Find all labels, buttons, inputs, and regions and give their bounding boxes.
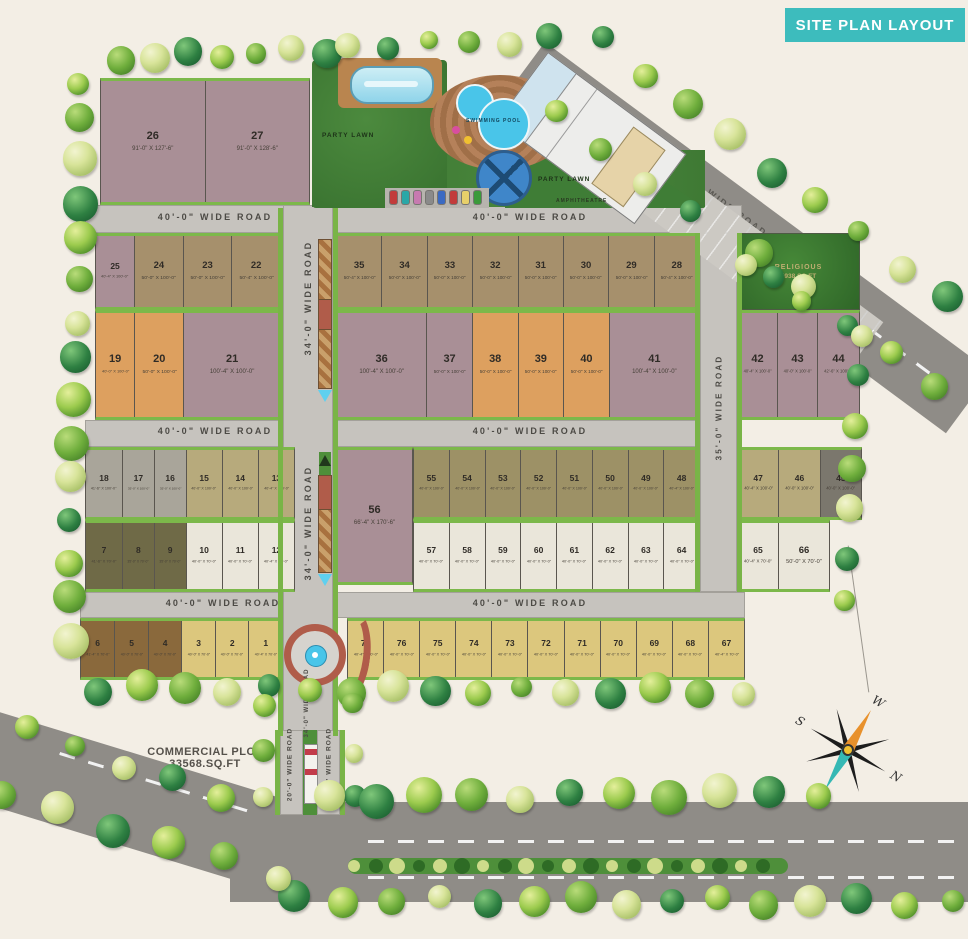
site-plan-canvas: 80'-0" WIDE ROAD xyxy=(0,0,968,939)
shrub-icon xyxy=(477,860,489,872)
plot-9: 935'-0" X 70'-0" xyxy=(154,523,186,589)
tree-icon xyxy=(660,889,684,913)
plot-22: 2250'-4" X 100'-0" xyxy=(231,236,280,307)
plot-27: 2791'-0" X 128'-6" xyxy=(205,81,310,202)
plot-24: 2450'-0" X 100'-0" xyxy=(134,236,183,307)
road-34-label: 34'-0" WIDE ROAD xyxy=(303,448,313,598)
car-icon xyxy=(414,191,421,204)
plot-30: 3050'-0" X 100'-0" xyxy=(563,236,608,307)
shrub-icon xyxy=(413,860,425,872)
shrub-icon xyxy=(389,858,405,874)
plot-11: 1140'-0" X 70'-0" xyxy=(222,523,258,589)
tree-icon xyxy=(335,33,360,58)
plot-16: 1635'-0" X 100'-0" xyxy=(154,450,186,517)
plot-58: 5840'-0" X 70'-0" xyxy=(449,523,485,589)
plot-23: 2350'-0" X 100'-0" xyxy=(183,236,232,307)
plot-69: 6940'-0" X 70'-0" xyxy=(636,621,672,677)
plot-65: 6540'-4" X 70'-0" xyxy=(738,523,778,589)
lane-dash xyxy=(368,840,958,843)
tree-icon xyxy=(511,677,531,697)
plot-75: 7540'-0" X 70'-0" xyxy=(419,621,455,677)
tree-icon xyxy=(112,756,136,780)
plot-block-b2627: 2691'-0" X 127'-6"2791'-0" X 128'-6" xyxy=(100,78,310,205)
tree-icon xyxy=(834,590,855,611)
road-40-label: 40'-0" WIDE ROAD xyxy=(455,598,605,608)
plot-block-b57_64: 5740'-0" X 70'-0"5840'-0" X 70'-0"5940'-… xyxy=(413,520,700,592)
road-median xyxy=(319,240,331,300)
tree-icon xyxy=(552,679,579,706)
tree-icon xyxy=(932,281,963,312)
green-strip xyxy=(695,233,700,592)
plot-17: 1735'-0" X 100'-0" xyxy=(122,450,154,517)
tree-icon xyxy=(53,623,89,659)
tree-icon xyxy=(67,73,89,95)
shrub-icon xyxy=(627,859,641,873)
tree-icon xyxy=(56,382,92,418)
plot-2: 240'-0" X 70'-0" xyxy=(215,621,249,677)
shrub-icon xyxy=(433,859,447,873)
tree-icon xyxy=(63,141,98,176)
plot-48: 4840'-4" X 100'-0" xyxy=(663,450,699,517)
car-icon xyxy=(450,191,457,204)
tree-icon xyxy=(794,885,826,917)
plot-block-b6_1: 641'-4" X 70'-0"540'-0" X 70'-0"440'-0" … xyxy=(80,618,283,680)
tree-icon xyxy=(757,158,787,188)
tree-icon xyxy=(497,32,522,57)
plot-74: 7440'-0" X 70'-0" xyxy=(455,621,491,677)
tree-icon xyxy=(633,64,658,89)
plot-31: 3150'-0" X 100'-0" xyxy=(518,236,563,307)
plot-20: 2050'-0" X 100'-0" xyxy=(134,313,183,417)
plot-55: 5540'-0" X 100'-0" xyxy=(414,450,449,517)
tree-icon xyxy=(806,783,832,809)
tree-icon xyxy=(174,37,203,66)
plot-block-b18_13: 1841'-6" X 100'-0"1735'-0" X 100'-0"1635… xyxy=(85,447,295,520)
tree-icon xyxy=(673,89,703,119)
tree-icon xyxy=(465,680,491,706)
road-median xyxy=(319,510,331,572)
tree-icon xyxy=(702,773,737,808)
title-banner: SITE PLAN LAYOUT xyxy=(785,8,965,42)
road-40-label: 40'-0" WIDE ROAD xyxy=(140,212,290,222)
plot-56: 5666'-4" X 170'-6" xyxy=(337,450,412,582)
plot-block-b7_12: 741'-6" X 70'-0"835'-0" X 70'-0"935'-0" … xyxy=(85,520,295,592)
tree-icon xyxy=(107,46,135,74)
lap-pool xyxy=(350,66,434,104)
shrub-icon xyxy=(518,858,534,874)
plot-43: 4340'-0" X 100'-0" xyxy=(777,313,817,417)
tree-icon xyxy=(84,678,112,706)
plot-67: 6740'-4" X 70'-0" xyxy=(708,621,744,677)
tree-icon xyxy=(612,890,641,919)
tree-icon xyxy=(836,494,863,521)
median-marker xyxy=(319,455,331,466)
car-icon xyxy=(474,191,481,204)
tree-icon xyxy=(680,200,701,221)
tree-icon xyxy=(848,221,869,242)
tree-icon xyxy=(314,780,345,811)
compass-n: N xyxy=(888,768,904,785)
tree-icon xyxy=(60,341,92,373)
plot-52: 5240'-0" X 100'-0" xyxy=(520,450,556,517)
plot-51: 5140'-0" X 100'-0" xyxy=(556,450,592,517)
road-median xyxy=(319,300,331,330)
plot-19: 1940'-0" X 100'-0" xyxy=(96,313,134,417)
tree-icon xyxy=(140,43,170,73)
tree-icon xyxy=(169,672,201,704)
plot-block-b25_22: 2540'-4" X 100'-0"2450'-0" X 100'-0"2350… xyxy=(95,233,281,310)
plot-53: 5340'-0" X 100'-0" xyxy=(485,450,521,517)
plot-10: 1040'-0" X 70'-0" xyxy=(186,523,222,589)
tree-icon xyxy=(519,886,550,917)
road-34-label: 34'-0" WIDE ROAD xyxy=(304,648,310,758)
road-40-label: 40'-0" WIDE ROAD xyxy=(140,426,290,436)
tree-icon xyxy=(891,892,919,920)
tree-icon xyxy=(55,461,86,492)
road-median xyxy=(319,330,331,388)
kids-play-icon xyxy=(452,126,460,134)
tree-icon xyxy=(474,889,502,917)
shrub-icon xyxy=(348,860,360,872)
compass-s: S xyxy=(793,713,807,729)
tree-icon xyxy=(64,221,97,254)
kids-play-icon xyxy=(464,136,472,144)
tree-icon xyxy=(278,35,304,61)
plot-block-b19_21: 1940'-0" X 100'-0"2050'-0" X 100'-0"2110… xyxy=(95,310,281,420)
shrub-icon xyxy=(671,860,683,872)
plot-28: 2850'-4" X 100'-0" xyxy=(654,236,699,307)
compass-rose: W N E S xyxy=(782,684,913,815)
plot-40: 4050'-0" X 100'-0" xyxy=(563,313,609,417)
tree-icon xyxy=(57,508,81,532)
tree-icon xyxy=(377,670,409,702)
tree-icon xyxy=(152,826,185,859)
tree-icon xyxy=(378,888,404,914)
tree-icon xyxy=(253,694,277,718)
plot-15: 1540'-0" X 100'-0" xyxy=(186,450,222,517)
plot-41: 41100'-4" X 100'-0" xyxy=(609,313,699,417)
green-strip xyxy=(275,730,280,815)
tree-icon xyxy=(65,103,94,132)
tree-icon xyxy=(66,266,93,293)
plot-60: 6040'-0" X 70'-0" xyxy=(520,523,556,589)
tree-icon xyxy=(763,266,785,288)
shrub-icon xyxy=(735,860,747,872)
tree-icon xyxy=(921,373,948,400)
plot-38: 3850'-0" X 100'-0" xyxy=(472,313,518,417)
tree-icon xyxy=(126,669,158,701)
plot-50: 5040'-0" X 100'-0" xyxy=(592,450,628,517)
plot-47: 4740'-4" X 100'-0" xyxy=(738,450,778,517)
tree-icon xyxy=(651,780,687,816)
shrub-icon xyxy=(691,859,705,873)
plot-3: 340'-0" X 70'-0" xyxy=(181,621,215,677)
plot-block-b77_67: 7740'-4" X 70'-0"7640'-0" X 70'-0"7540'-… xyxy=(347,618,745,680)
shrub-icon xyxy=(647,858,663,874)
tree-icon xyxy=(345,744,364,763)
tree-icon xyxy=(252,739,275,762)
tree-icon xyxy=(328,887,359,918)
plot-70: 7040'-0" X 70'-0" xyxy=(600,621,636,677)
tree-icon xyxy=(639,672,671,704)
plot-46: 4640'-0" X 100'-0" xyxy=(778,450,819,517)
lane-dash xyxy=(368,876,958,879)
road-34-label: 34'-0" WIDE ROAD xyxy=(303,223,313,373)
swimming-pool-blob xyxy=(478,98,530,150)
tree-icon xyxy=(565,881,597,913)
shrub-icon xyxy=(562,859,576,873)
plot-1: 140'-4" X 70'-0" xyxy=(248,621,282,677)
tree-icon xyxy=(880,341,903,364)
tree-icon xyxy=(253,787,273,807)
shrub-icon xyxy=(542,860,554,872)
plot-34: 3450'-0" X 100'-0" xyxy=(381,236,426,307)
tree-icon xyxy=(455,778,488,811)
tree-icon xyxy=(420,676,451,707)
plot-block-b65_66: 6540'-4" X 70'-0"6650'-0" X 70'-0" xyxy=(737,520,830,592)
tree-icon xyxy=(889,256,916,283)
tree-icon xyxy=(835,547,860,572)
road-40-label: 40'-0" WIDE ROAD xyxy=(455,426,605,436)
shrub-icon xyxy=(712,858,728,874)
green-strip xyxy=(278,208,283,736)
plot-61: 6140'-0" X 70'-0" xyxy=(556,523,592,589)
swimming-pool-label: SWIMMING POOL xyxy=(466,118,521,124)
plot-7: 741'-6" X 70'-0" xyxy=(86,523,122,589)
tree-icon xyxy=(633,172,657,196)
car-icon xyxy=(390,191,397,204)
tree-icon xyxy=(54,426,89,461)
shrub-icon xyxy=(606,860,618,872)
plot-35: 3550'-4" X 100'-0" xyxy=(337,236,381,307)
tree-icon xyxy=(841,883,872,914)
tree-icon xyxy=(246,43,267,64)
tree-icon xyxy=(210,45,235,70)
tree-icon xyxy=(595,678,626,709)
tree-icon xyxy=(536,23,562,49)
tree-icon xyxy=(65,311,90,336)
plot-block-b36_41: 36100'-4" X 100'-0"3750'-0" X 100'-0"385… xyxy=(336,310,700,420)
median-marker xyxy=(318,390,332,402)
party-lawn-label: PARTY LAWN xyxy=(322,132,374,139)
plot-68: 6840'-0" X 70'-0" xyxy=(672,621,708,677)
tree-icon xyxy=(406,777,442,813)
tree-icon xyxy=(359,784,394,819)
tree-icon xyxy=(428,885,451,908)
tree-icon xyxy=(96,814,130,848)
car-icon xyxy=(462,191,469,204)
plot-29: 2950'-0" X 100'-0" xyxy=(608,236,653,307)
plot-62: 6240'-0" X 70'-0" xyxy=(592,523,628,589)
plot-36: 36100'-4" X 100'-0" xyxy=(337,313,426,417)
tree-icon xyxy=(592,26,614,48)
plot-59: 5940'-0" X 70'-0" xyxy=(485,523,521,589)
tree-icon xyxy=(942,890,964,912)
road-40-label: 40'-0" WIDE ROAD xyxy=(455,212,605,222)
tree-icon xyxy=(792,291,811,310)
tree-icon xyxy=(842,413,868,439)
shrub-icon xyxy=(498,859,512,873)
road-median xyxy=(319,476,331,510)
tree-icon xyxy=(298,678,322,702)
page-title: SITE PLAN LAYOUT xyxy=(796,17,955,34)
plot-13: 1340'-4" X 100'-0" xyxy=(258,450,294,517)
road-40-label: 40'-0" WIDE ROAD xyxy=(148,598,298,608)
plot-73: 7340'-0" X 70'-0" xyxy=(491,621,527,677)
car-icon xyxy=(426,191,433,204)
tree-icon xyxy=(458,31,480,53)
plot-39: 3950'-0" X 100'-0" xyxy=(518,313,564,417)
tree-icon xyxy=(749,890,779,920)
tree-icon xyxy=(735,254,757,276)
tree-icon xyxy=(545,100,568,123)
green-strip xyxy=(737,233,742,592)
plot-25: 2540'-4" X 100'-0" xyxy=(96,236,134,307)
plot-block-b56: 5666'-4" X 170'-6" xyxy=(336,447,413,585)
tree-icon xyxy=(714,118,746,150)
tree-icon xyxy=(802,187,828,213)
plot-26: 2691'-0" X 127'-6" xyxy=(101,81,205,202)
plot-42: 4240'-4" X 100'-0" xyxy=(738,313,777,417)
compass-w: W xyxy=(870,693,888,711)
plot-72: 7240'-0" X 70'-0" xyxy=(527,621,563,677)
plot-4: 440'-0" X 70'-0" xyxy=(148,621,182,677)
plot-54: 5440'-0" X 100'-0" xyxy=(449,450,485,517)
plot-37: 3750'-0" X 100'-0" xyxy=(426,313,472,417)
plot-33: 3350'-0" X 100'-0" xyxy=(427,236,472,307)
tree-icon xyxy=(847,364,869,386)
tree-icon xyxy=(685,679,714,708)
tree-icon xyxy=(753,776,785,808)
tree-icon xyxy=(556,779,583,806)
tree-icon xyxy=(41,791,73,823)
plot-32: 3250'-0" X 100'-0" xyxy=(472,236,517,307)
shrub-icon xyxy=(583,858,599,874)
party-lawn-2-label: PARTY LAWN xyxy=(538,176,590,183)
tree-icon xyxy=(63,186,99,222)
plot-49: 4940'-0" X 100'-0" xyxy=(628,450,664,517)
car-icon xyxy=(402,191,409,204)
amphitheatre-label: AMPHITHEATRE xyxy=(556,198,607,204)
tree-icon xyxy=(705,885,730,910)
plot-71: 7140'-0" X 70'-0" xyxy=(564,621,600,677)
tree-icon xyxy=(55,550,83,578)
plot-14: 1440'-0" X 100'-0" xyxy=(222,450,258,517)
shrub-icon xyxy=(756,859,770,873)
plot-57: 5740'-0" X 70'-0" xyxy=(414,523,449,589)
shrub-icon xyxy=(454,858,470,874)
plot-63: 6340'-0" X 70'-0" xyxy=(628,523,664,589)
plot-block-b55_48: 5540'-0" X 100'-0"5440'-0" X 100'-0"5340… xyxy=(413,447,700,520)
plot-66: 6650'-0" X 70'-0" xyxy=(778,523,829,589)
plot-block-b35_28: 3550'-4" X 100'-0"3450'-0" X 100'-0"3350… xyxy=(336,233,700,310)
tree-icon xyxy=(838,455,866,483)
tree-icon xyxy=(732,682,756,706)
tree-icon xyxy=(342,693,363,714)
plot-76: 7640'-0" X 70'-0" xyxy=(383,621,419,677)
road-35-label: 35'-0" WIDE ROAD xyxy=(715,333,724,483)
plot-8: 835'-0" X 70'-0" xyxy=(122,523,154,589)
median-marker xyxy=(318,574,332,586)
tree-icon xyxy=(213,678,241,706)
car-icon xyxy=(438,191,445,204)
plot-18: 1841'-6" X 100'-0" xyxy=(86,450,122,517)
plot-12: 1240'-4" X 70'-0" xyxy=(258,523,294,589)
shrub-icon xyxy=(369,859,383,873)
plot-64: 6440'-0" X 70'-0" xyxy=(663,523,699,589)
plot-21: 21100'-4" X 100'-0" xyxy=(183,313,280,417)
tree-icon xyxy=(420,31,438,49)
tree-icon xyxy=(377,37,399,59)
roundabout-fountain xyxy=(284,624,346,686)
